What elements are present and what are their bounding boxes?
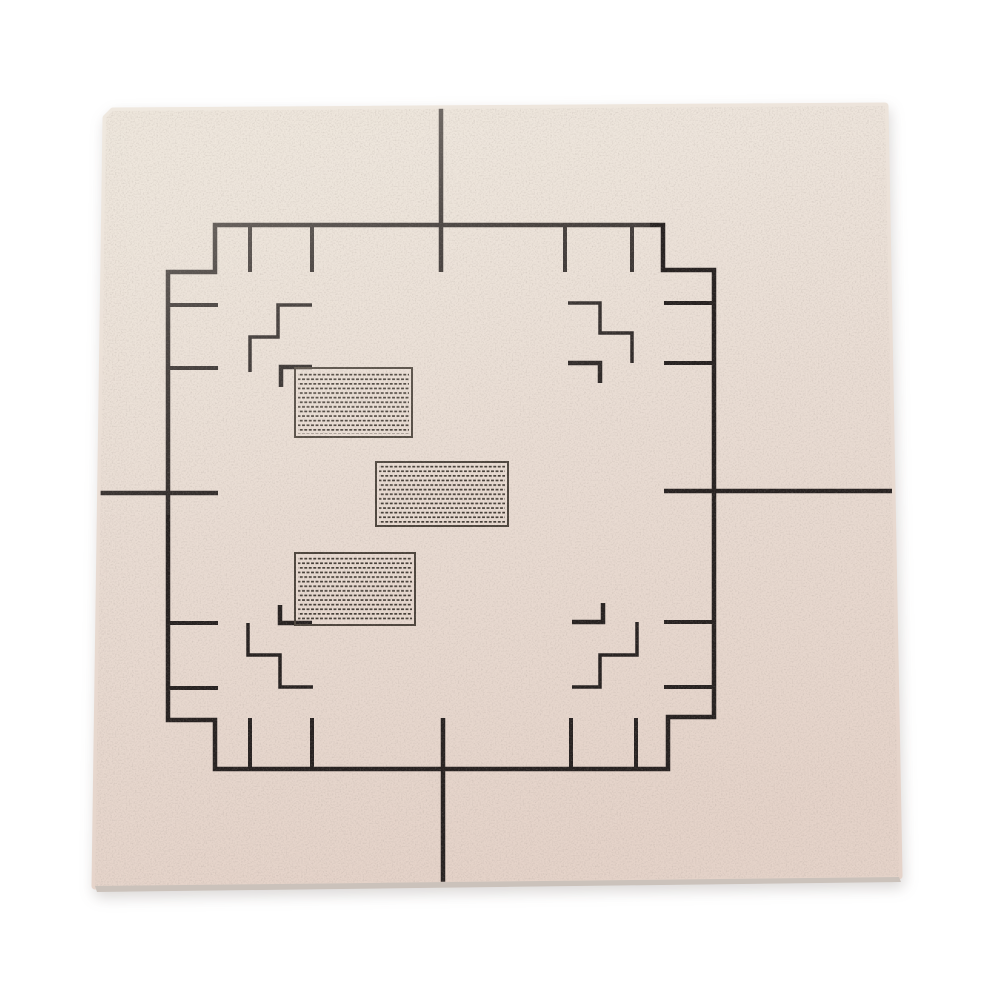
- product-photo-stage: [0, 0, 1000, 1000]
- substrate-plate-photo: [0, 0, 1000, 1000]
- grain-overlay: [90, 95, 910, 895]
- printed-artwork: [90, 95, 910, 895]
